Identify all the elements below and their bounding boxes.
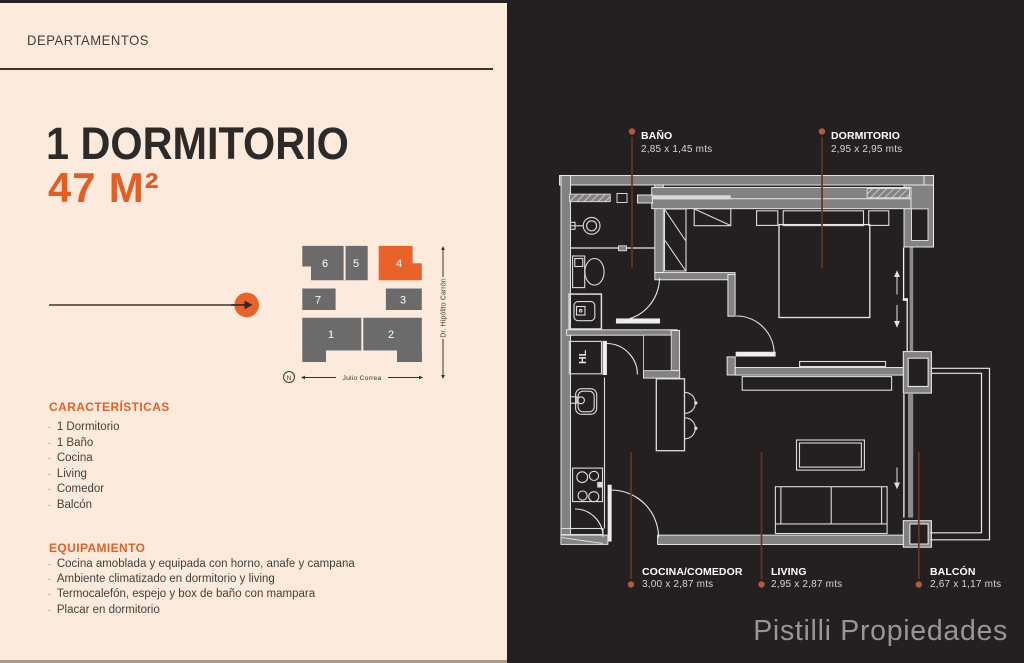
svg-text:7: 7 bbox=[315, 295, 321, 307]
svg-text:1: 1 bbox=[328, 329, 334, 341]
svg-text:3: 3 bbox=[400, 295, 406, 307]
svg-text:Julio Correa: Julio Correa bbox=[342, 375, 381, 382]
svg-text:6: 6 bbox=[322, 258, 328, 270]
svg-text:HL: HL bbox=[577, 349, 589, 364]
svg-text:2: 2 bbox=[388, 329, 394, 341]
svg-text:N: N bbox=[287, 375, 292, 382]
svg-text:4: 4 bbox=[396, 258, 402, 270]
svg-text:Dr. Hipólito Carrón: Dr. Hipólito Carrón bbox=[441, 278, 448, 337]
svg-text:5: 5 bbox=[353, 258, 359, 270]
